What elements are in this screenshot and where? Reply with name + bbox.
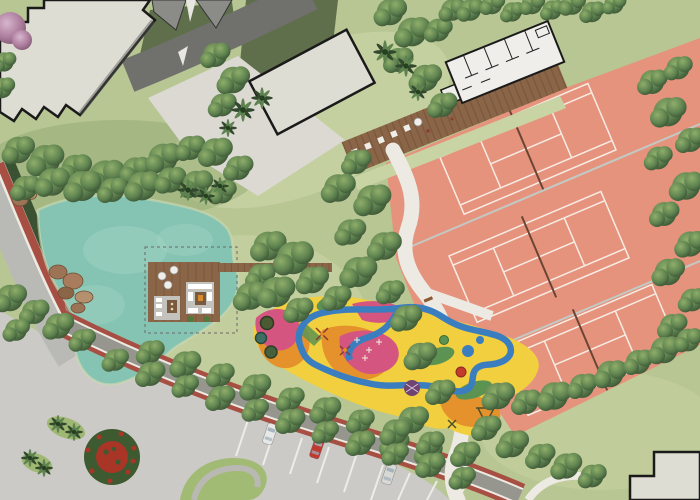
- palm-tree: [35, 459, 53, 477]
- palm-tree: [49, 415, 67, 433]
- palm-tree: [231, 98, 254, 121]
- palm-tree: [219, 119, 237, 137]
- roundabout-flower-bed: [84, 429, 140, 485]
- palm-tree: [197, 187, 215, 205]
- site-plan-canvas: [0, 0, 700, 500]
- palm-tree: [211, 177, 229, 195]
- palm-tree: [409, 83, 427, 101]
- palm-tree: [177, 179, 199, 201]
- flowering-tree: [12, 30, 32, 50]
- palm-tree: [373, 40, 396, 63]
- palm-tree: [21, 449, 39, 467]
- palm-tree: [65, 423, 83, 441]
- site-plan: [0, 0, 700, 500]
- potted-plant: [204, 316, 210, 322]
- palm-tree: [251, 87, 273, 109]
- potted-plant: [188, 316, 194, 322]
- palm-tree: [395, 55, 417, 77]
